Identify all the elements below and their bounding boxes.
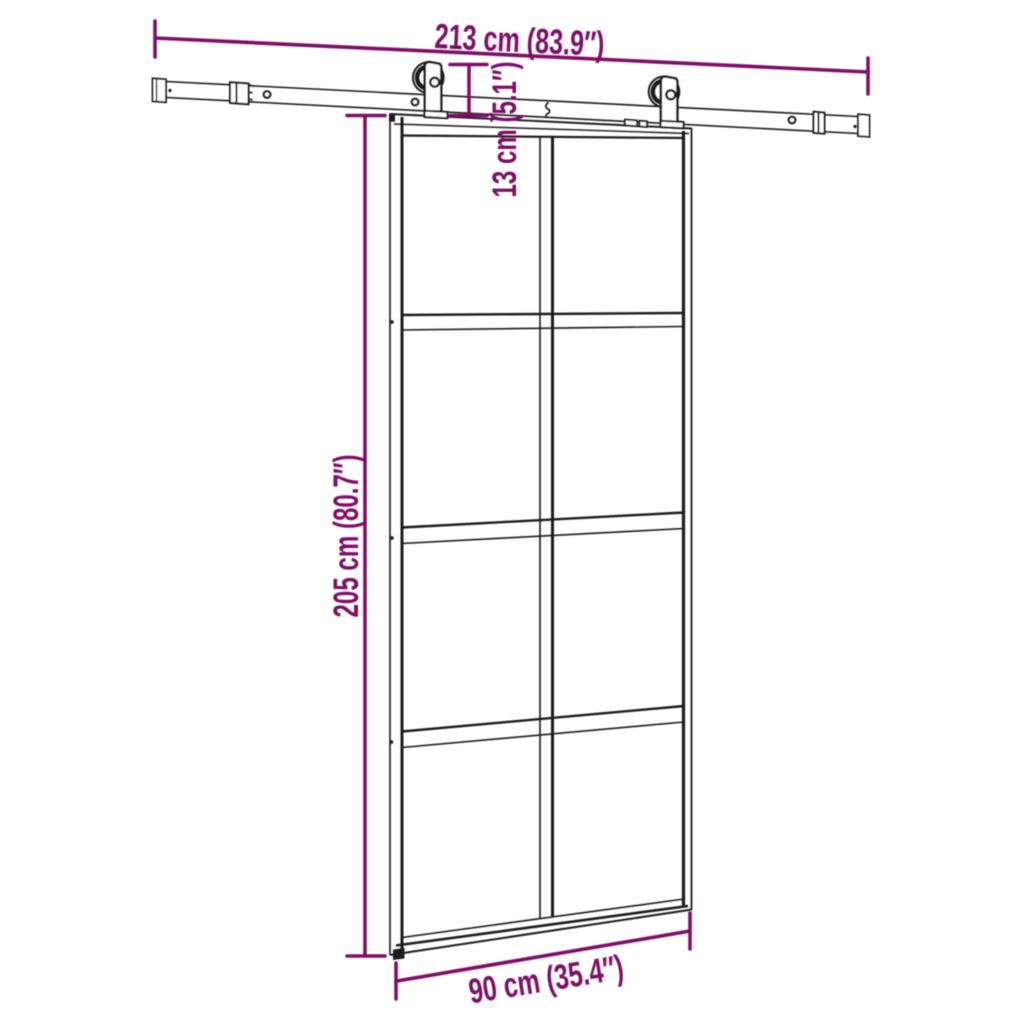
svg-text:205 cm (80.7″): 205 cm (80.7″) [327,455,366,618]
svg-text:13 cm (5.1″): 13 cm (5.1″) [486,62,524,198]
svg-text:90 cm (35.4″): 90 cm (35.4″) [466,948,626,1011]
svg-text:213 cm (83.9″): 213 cm (83.9″) [434,17,606,64]
